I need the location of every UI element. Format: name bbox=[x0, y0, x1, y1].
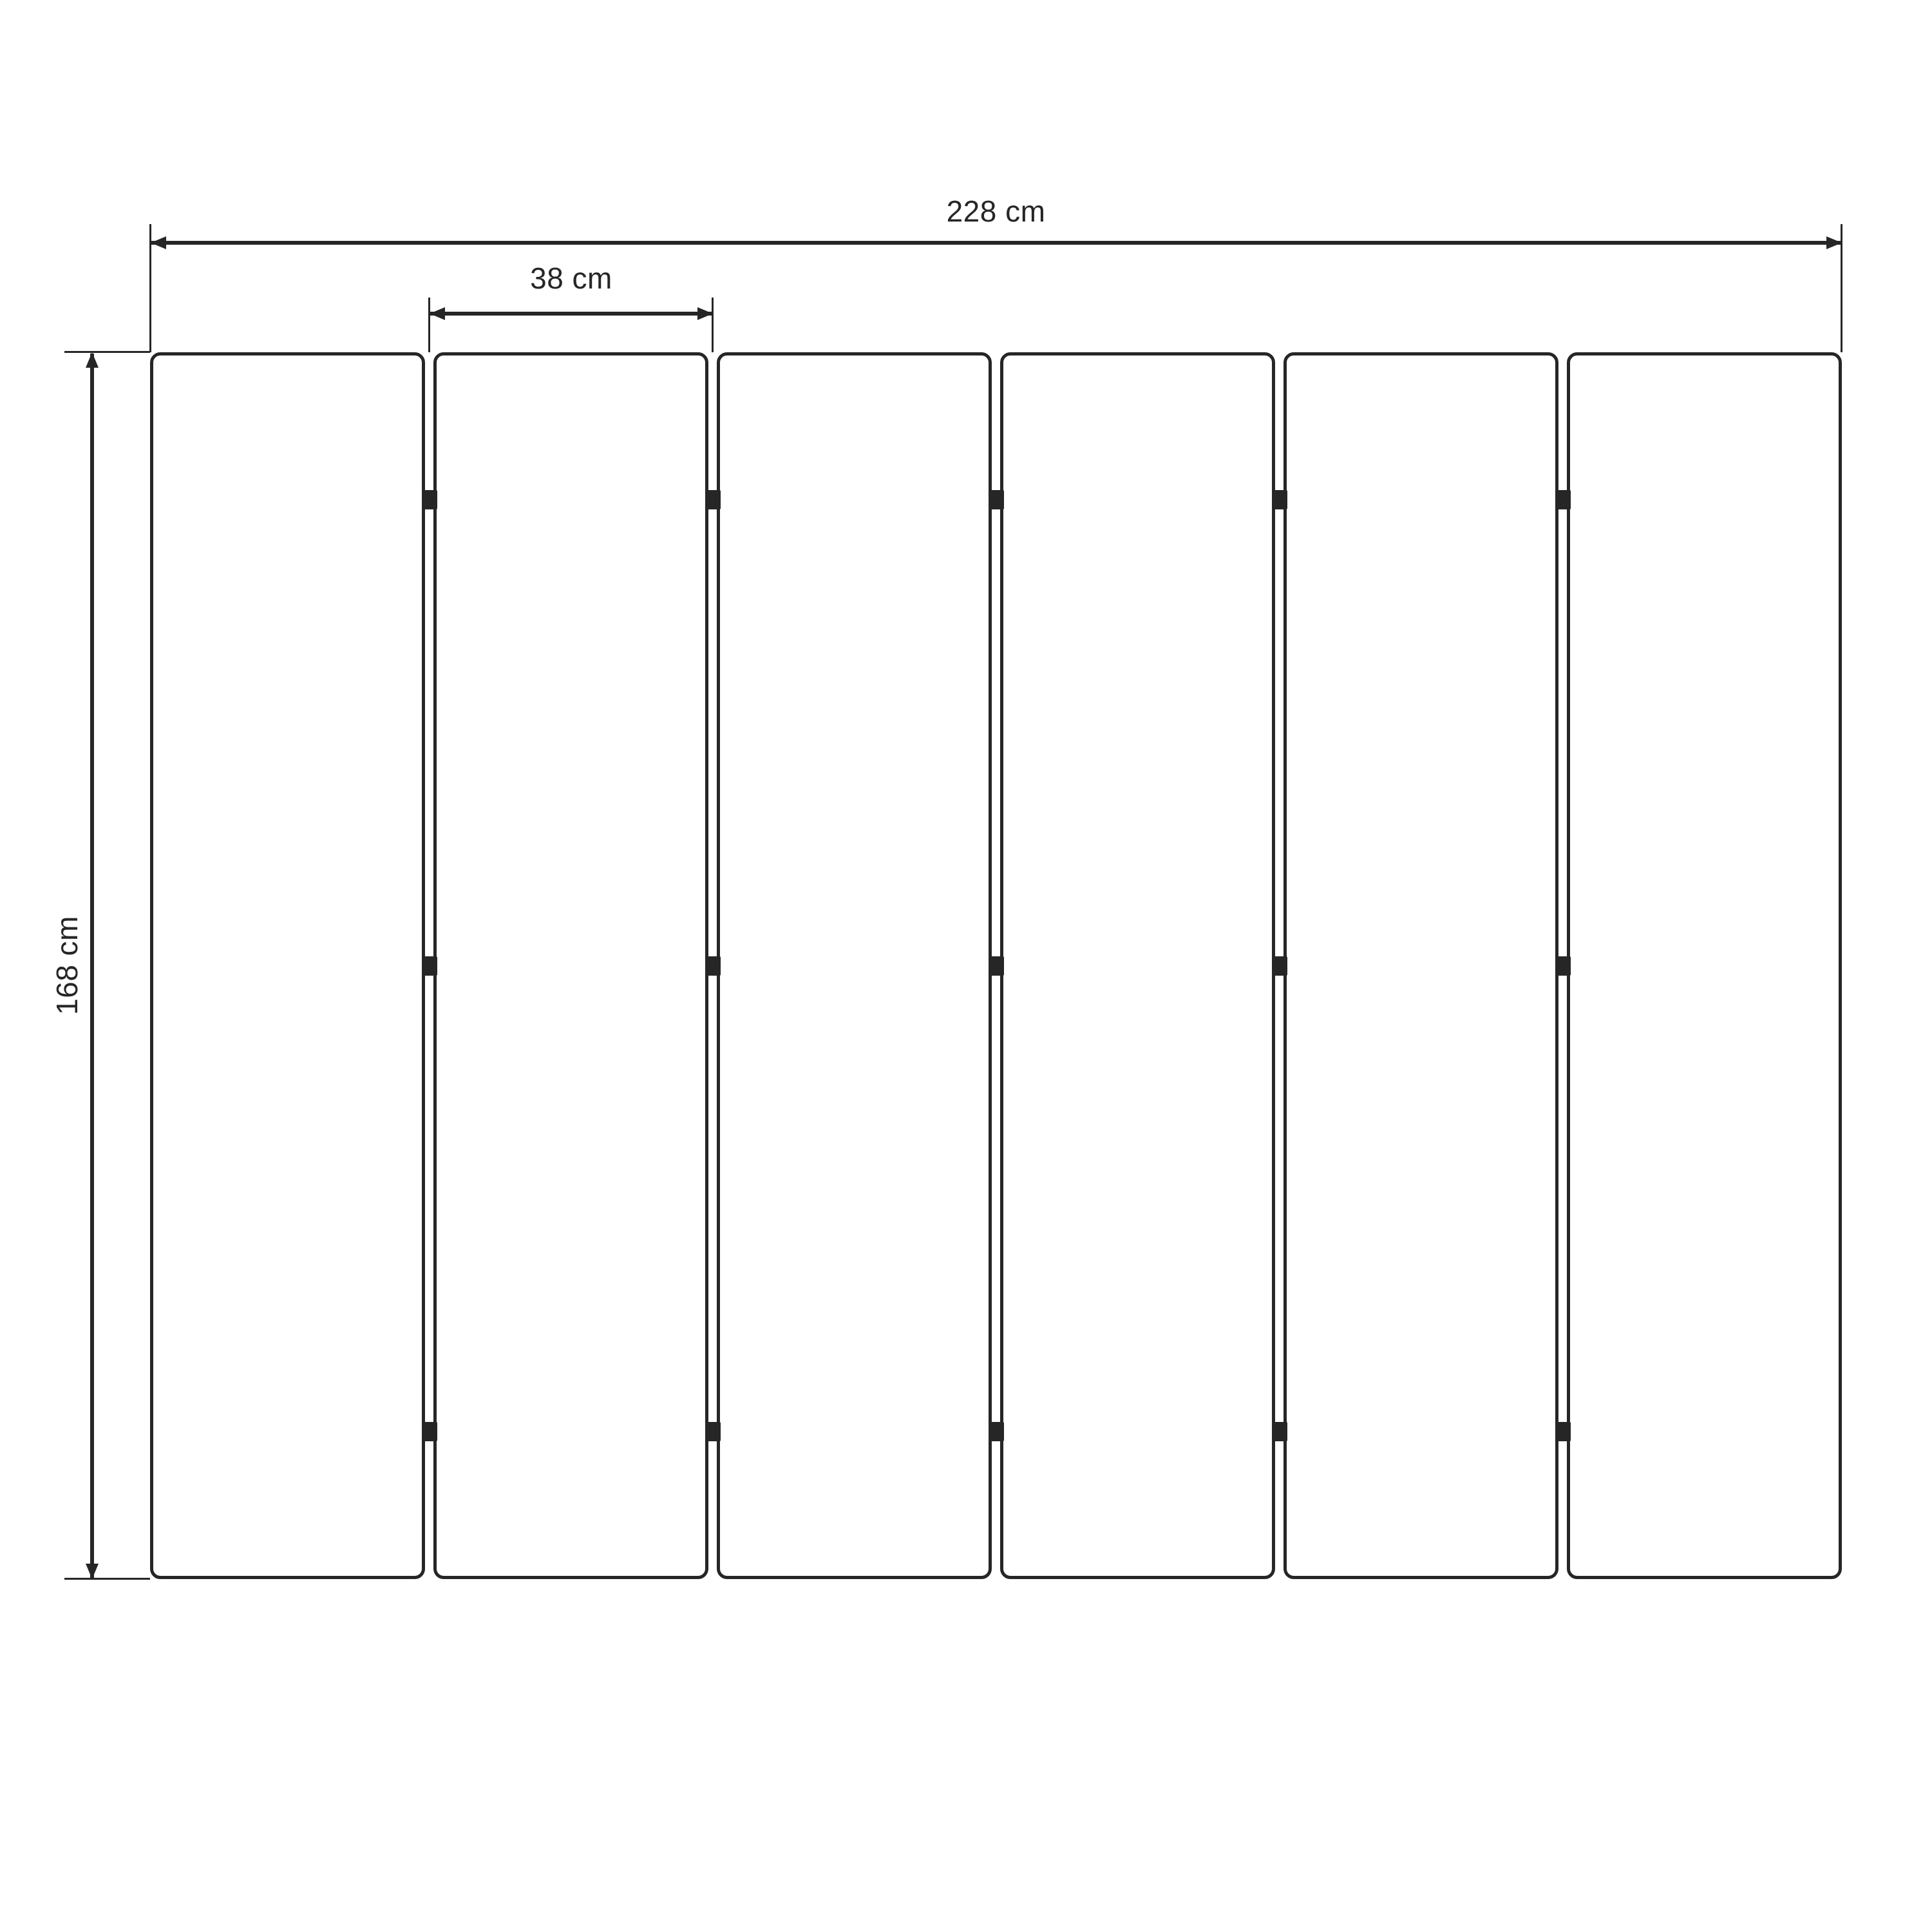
panels-row bbox=[150, 352, 1842, 1579]
hinge bbox=[989, 956, 1004, 976]
arrowhead-down bbox=[86, 1564, 99, 1579]
panel-2 bbox=[433, 352, 708, 1579]
hinge bbox=[989, 490, 1004, 509]
hinge bbox=[989, 1422, 1004, 1441]
hinge bbox=[1272, 1422, 1287, 1441]
extension-line-top bbox=[64, 351, 150, 353]
hinge bbox=[422, 956, 437, 976]
extension-line-left bbox=[428, 298, 430, 352]
hinge bbox=[1272, 956, 1287, 976]
total-width-label: 228 cm bbox=[150, 194, 1842, 229]
dimension-line bbox=[430, 312, 713, 316]
height-label: 168 cm bbox=[50, 837, 84, 1094]
hinge bbox=[1555, 490, 1571, 509]
hinge bbox=[1555, 956, 1571, 976]
hinge bbox=[705, 956, 721, 976]
panel-dimension-diagram: 228 cm 38 cm 168 cm bbox=[0, 0, 1932, 1932]
hinge bbox=[705, 490, 721, 509]
hinge bbox=[1272, 490, 1287, 509]
hinge bbox=[705, 1422, 721, 1441]
hinge bbox=[1555, 1422, 1571, 1441]
arrowhead-left bbox=[430, 307, 445, 320]
hinge bbox=[422, 1422, 437, 1441]
dimension-line bbox=[90, 354, 94, 1579]
arrowhead-right bbox=[1826, 236, 1842, 249]
panel-1 bbox=[150, 352, 425, 1579]
arrowhead-left bbox=[151, 236, 166, 249]
panel-width-label: 38 cm bbox=[430, 261, 713, 296]
panel-5 bbox=[1283, 352, 1558, 1579]
arrowhead-right bbox=[697, 307, 713, 320]
panel-4 bbox=[1000, 352, 1275, 1579]
arrowhead-up bbox=[86, 352, 99, 368]
extension-line-right bbox=[712, 298, 714, 352]
hinge bbox=[422, 490, 437, 509]
panel-6 bbox=[1567, 352, 1842, 1579]
dimension-line bbox=[151, 241, 1842, 245]
panel-3 bbox=[717, 352, 992, 1579]
extension-line-bottom bbox=[64, 1578, 150, 1580]
